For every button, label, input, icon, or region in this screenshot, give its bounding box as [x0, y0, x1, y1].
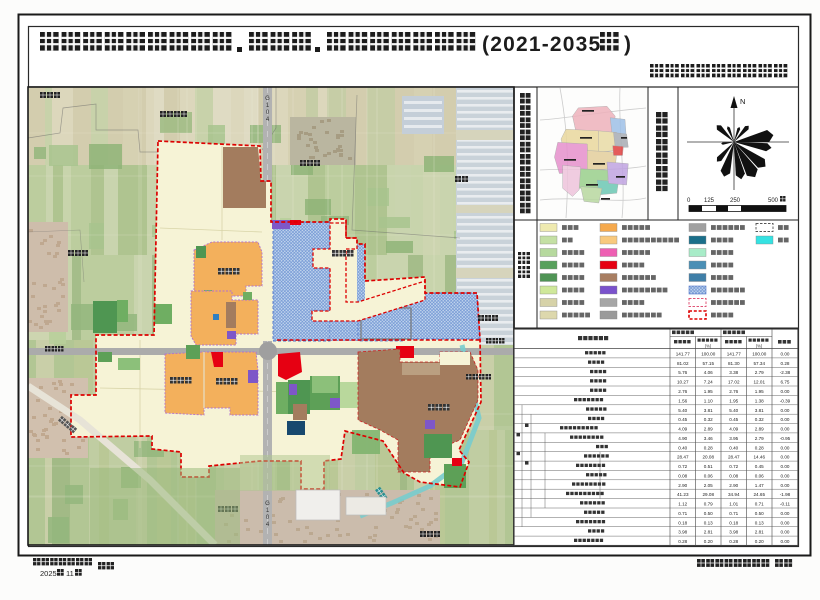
svg-text:10.27: 10.27	[677, 380, 689, 385]
svg-text:0.28: 0.28	[678, 539, 687, 544]
svg-text:500: 500	[768, 198, 779, 204]
svg-text:3.95: 3.95	[729, 436, 738, 441]
svg-text:81.30: 81.30	[728, 361, 740, 366]
svg-text:6.75: 6.75	[781, 380, 790, 385]
svg-text:0.00: 0.00	[781, 511, 790, 516]
svg-text:1.01: 1.01	[729, 502, 738, 507]
svg-text:1.95: 1.95	[729, 398, 738, 403]
svg-text:-0.11: -0.11	[780, 502, 791, 507]
svg-text:2.90: 2.90	[678, 483, 687, 488]
svg-text:34.94: 34.94	[728, 492, 740, 497]
svg-text:0.06: 0.06	[704, 473, 713, 478]
svg-text:0.00: 0.00	[781, 520, 790, 525]
svg-text:5.40: 5.40	[729, 408, 738, 413]
svg-text:0.00: 0.00	[781, 455, 790, 460]
svg-text:14.46: 14.46	[754, 455, 766, 460]
svg-text:0.71: 0.71	[755, 502, 764, 507]
svg-text:1.10: 1.10	[704, 398, 713, 403]
svg-text:2.90: 2.90	[729, 483, 738, 488]
svg-text:2025: 2025	[40, 569, 57, 578]
svg-text:0.18: 0.18	[729, 520, 738, 525]
svg-text:G: G	[265, 501, 270, 507]
svg-text:3.38: 3.38	[729, 370, 738, 375]
svg-text:2.76: 2.76	[678, 389, 687, 394]
svg-text:0.71: 0.71	[678, 511, 687, 516]
svg-text:141.77: 141.77	[727, 351, 741, 356]
svg-text:0.08: 0.08	[729, 473, 738, 478]
svg-text:1.47: 1.47	[755, 483, 764, 488]
svg-text:-2.38: -2.38	[780, 370, 791, 375]
svg-text:1.56: 1.56	[678, 398, 687, 403]
svg-text:-1.98: -1.98	[780, 492, 791, 497]
svg-text:0.32: 0.32	[755, 417, 764, 422]
svg-text:0.72: 0.72	[678, 464, 687, 469]
svg-text:2.79: 2.79	[755, 370, 764, 375]
svg-text:5.40: 5.40	[678, 408, 687, 413]
svg-text:2.89: 2.89	[755, 427, 764, 432]
svg-text:0.72: 0.72	[729, 464, 738, 469]
svg-text:4.09: 4.09	[729, 427, 738, 432]
svg-text:17.02: 17.02	[728, 380, 740, 385]
svg-text:12.01: 12.01	[754, 380, 766, 385]
svg-text:0.50: 0.50	[704, 511, 713, 516]
svg-text:0.45: 0.45	[678, 417, 687, 422]
svg-text:1.38: 1.38	[755, 398, 764, 403]
svg-text:0.00: 0.00	[781, 539, 790, 544]
svg-text:0.18: 0.18	[678, 520, 687, 525]
svg-text:0.00: 0.00	[781, 351, 790, 356]
svg-text:3.46: 3.46	[704, 436, 713, 441]
svg-text:4.09: 4.09	[678, 427, 687, 432]
svg-text:57.15: 57.15	[703, 361, 715, 366]
svg-text:28.47: 28.47	[677, 455, 689, 460]
svg-text:4.06: 4.06	[704, 370, 713, 375]
svg-text:2.05: 2.05	[704, 483, 713, 488]
svg-text:29.08: 29.08	[703, 492, 715, 497]
svg-text:N: N	[740, 97, 745, 106]
svg-text:2.81: 2.81	[755, 530, 764, 535]
svg-text:(%): (%)	[756, 344, 763, 349]
svg-text:0.71: 0.71	[729, 511, 738, 516]
svg-text:-0.39: -0.39	[780, 398, 791, 403]
svg-text:0.20: 0.20	[704, 539, 713, 544]
svg-text:0.00: 0.00	[781, 445, 790, 450]
svg-text:1.12: 1.12	[678, 502, 687, 507]
svg-text:(%): (%)	[705, 344, 712, 349]
svg-text:0.51: 0.51	[704, 464, 713, 469]
svg-text:0.50: 0.50	[755, 511, 764, 516]
svg-text:0.00: 0.00	[781, 408, 790, 413]
svg-text:57.34: 57.34	[754, 361, 766, 366]
svg-text:0.28: 0.28	[781, 361, 790, 366]
svg-text:0.00: 0.00	[781, 427, 790, 432]
svg-text:81.02: 81.02	[677, 361, 689, 366]
svg-text:0.28: 0.28	[729, 539, 738, 544]
svg-text:3.98: 3.98	[729, 530, 738, 535]
svg-text:11: 11	[66, 569, 74, 578]
svg-text:2.79: 2.79	[755, 436, 764, 441]
svg-text:0.13: 0.13	[755, 520, 764, 525]
svg-text:125: 125	[704, 198, 715, 204]
svg-text:1.95: 1.95	[704, 389, 713, 394]
svg-text:41.23: 41.23	[677, 492, 689, 497]
svg-text:1.95: 1.95	[755, 389, 764, 394]
svg-text:0.45: 0.45	[755, 464, 764, 469]
svg-text:4.90: 4.90	[678, 436, 687, 441]
svg-text:2.89: 2.89	[704, 427, 713, 432]
svg-text:2.76: 2.76	[729, 389, 738, 394]
svg-text:0.79: 0.79	[704, 502, 713, 507]
svg-text:141.77: 141.77	[676, 351, 690, 356]
svg-text:0.13: 0.13	[704, 520, 713, 525]
svg-text:0.06: 0.06	[755, 473, 764, 478]
svg-text:24.65: 24.65	[754, 492, 766, 497]
svg-text:2.81: 2.81	[704, 530, 713, 535]
svg-text:-0.95: -0.95	[780, 436, 791, 441]
svg-text:7.24: 7.24	[704, 380, 713, 385]
svg-text:0.00: 0.00	[781, 389, 790, 394]
svg-text:0.40: 0.40	[729, 445, 738, 450]
svg-text:0.28: 0.28	[755, 445, 764, 450]
svg-text:0.20: 0.20	[755, 539, 764, 544]
svg-text:0.08: 0.08	[678, 473, 687, 478]
svg-text:0.00: 0.00	[781, 417, 790, 422]
svg-text:250: 250	[730, 198, 741, 204]
svg-text:3.98: 3.98	[678, 530, 687, 535]
svg-text:0.00: 0.00	[781, 530, 790, 535]
svg-text:3.81: 3.81	[755, 408, 764, 413]
svg-text:3.81: 3.81	[704, 408, 713, 413]
svg-text:): )	[624, 33, 631, 56]
svg-text:20.08: 20.08	[703, 455, 715, 460]
svg-text:0.32: 0.32	[704, 417, 713, 422]
svg-text:100.00: 100.00	[701, 351, 715, 356]
svg-text:(2021-2035: (2021-2035	[482, 33, 601, 56]
svg-text:0.00: 0.00	[781, 464, 790, 469]
svg-text:100.00: 100.00	[752, 351, 766, 356]
svg-text:G: G	[265, 96, 270, 102]
svg-text:0.00: 0.00	[781, 473, 790, 478]
svg-text:28.47: 28.47	[728, 455, 740, 460]
svg-text:0.00: 0.00	[781, 483, 790, 488]
svg-text:0.40: 0.40	[678, 445, 687, 450]
svg-text:0.45: 0.45	[729, 417, 738, 422]
svg-text:5.76: 5.76	[678, 370, 687, 375]
svg-text:0.28: 0.28	[704, 445, 713, 450]
